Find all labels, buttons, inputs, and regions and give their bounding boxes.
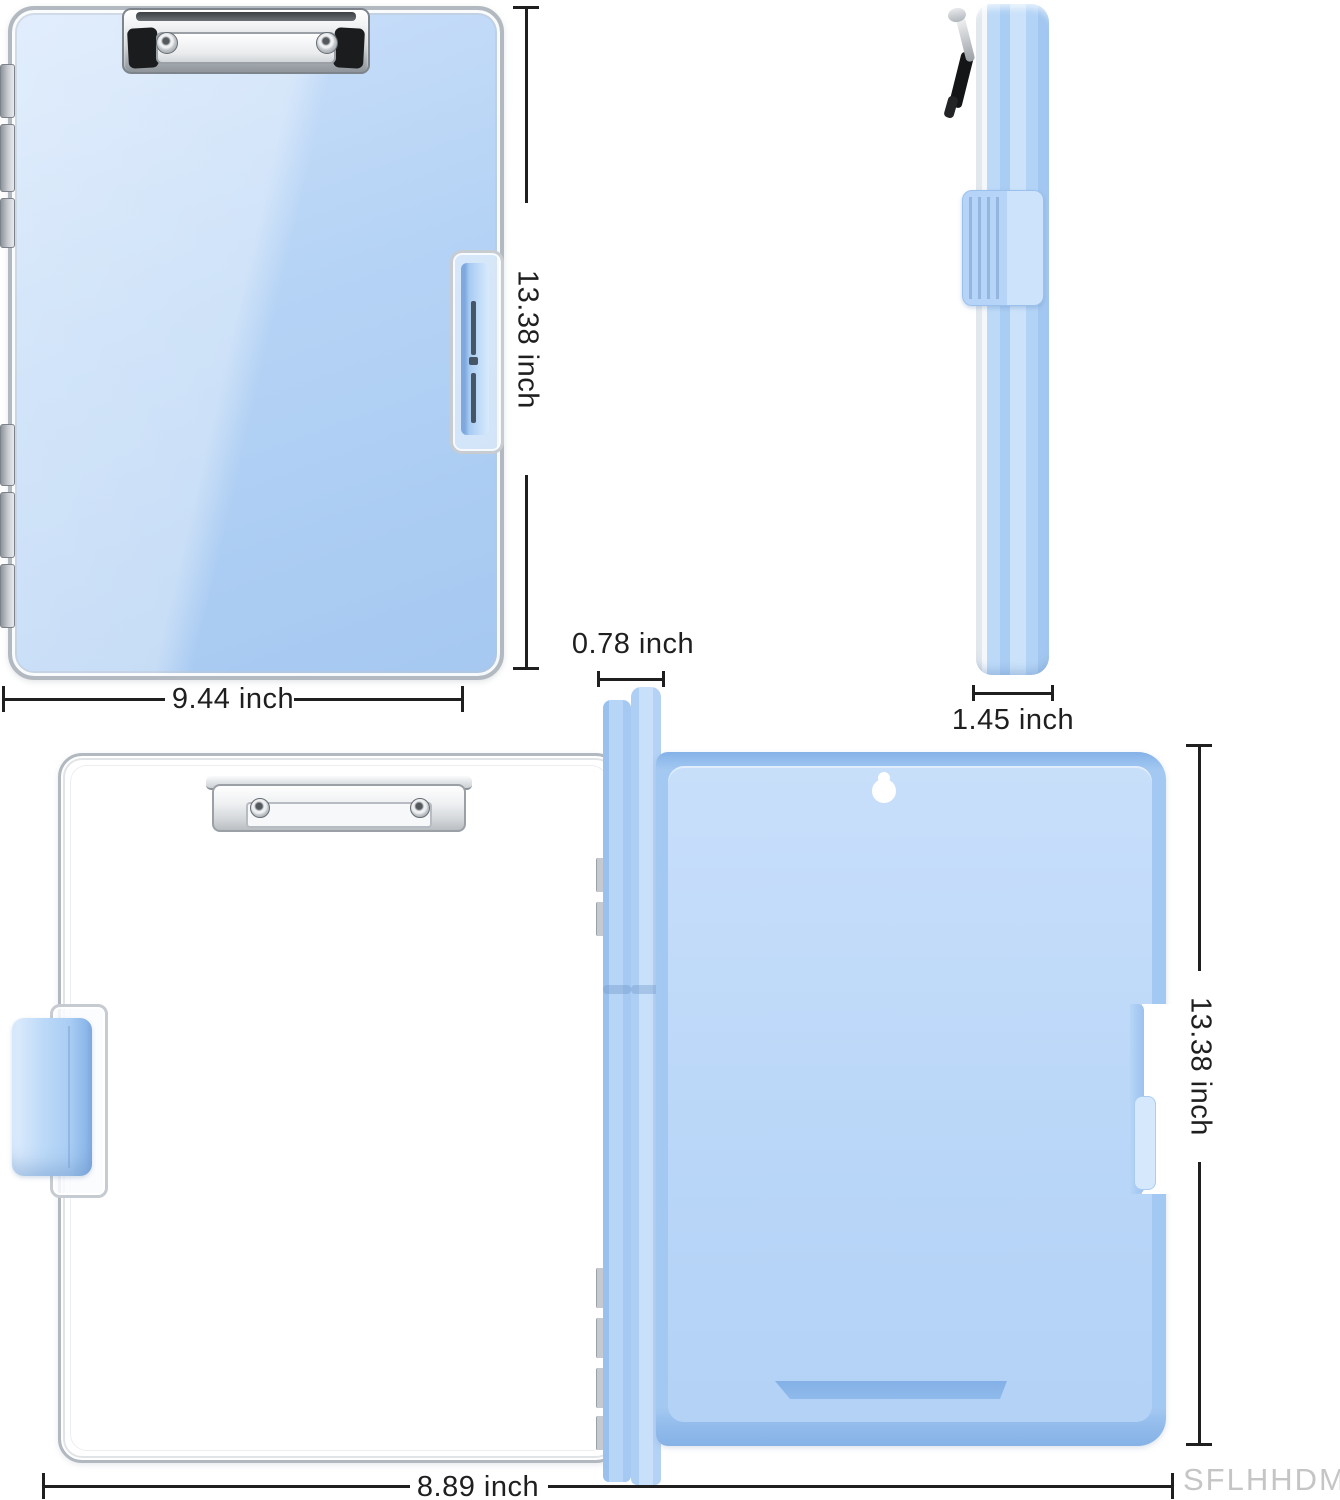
dimension-front-height-label: 13.38 inch — [509, 206, 545, 472]
dimension-back-width: 8.89 inch — [42, 1470, 1174, 1500]
front-view-board — [8, 6, 504, 680]
back-view-panel — [656, 752, 1166, 1446]
hinge-icon — [0, 564, 15, 628]
clip-rivet-right — [410, 798, 430, 818]
hinge-icon — [0, 198, 15, 248]
dimension-side — [972, 684, 1054, 702]
pen-slot — [775, 1381, 1007, 1399]
latch-frame — [450, 250, 504, 454]
hinge-icon — [0, 492, 15, 558]
dimension-spine — [597, 670, 665, 688]
dimension-tick — [1171, 1473, 1174, 1499]
side-view-body — [976, 4, 1049, 675]
hinge-icon — [0, 424, 15, 486]
clip-grip-left — [127, 27, 159, 69]
clip-rivet-left — [250, 798, 270, 818]
dimension-line — [525, 9, 528, 203]
latch-slot — [471, 373, 476, 423]
watermark-text: SFLHHDM — [1183, 1462, 1340, 1498]
clip-rivet-left — [156, 32, 178, 54]
back-panel-inner — [668, 766, 1152, 1422]
dimension-back-width-label: 8.89 inch — [388, 1470, 568, 1500]
dimension-tick — [1051, 685, 1054, 701]
dimension-line — [525, 475, 528, 667]
clip-icon — [206, 776, 472, 836]
dimension-line — [548, 1485, 1171, 1488]
dimension-line — [45, 1485, 410, 1488]
keyhole-hang-hole-icon — [872, 772, 896, 806]
hinge-icon — [0, 124, 15, 192]
clipboard-dimension-diagram: 13.38 inch 9.44 inch 0.78 inch 1.45 inch… — [0, 0, 1340, 1500]
dimension-back-height: 13.38 inch — [1182, 744, 1218, 1446]
clip-icon — [122, 8, 370, 74]
dimension-front-height: 13.38 inch — [509, 6, 545, 670]
open-view-board — [58, 753, 620, 1463]
side-clip-icon — [956, 16, 976, 63]
dimension-tick — [513, 667, 539, 670]
latch-catch-tab — [1134, 1096, 1156, 1190]
dimension-line — [1198, 747, 1201, 971]
clip-lever — [246, 802, 432, 828]
dimension-side-label: 1.45 inch — [950, 702, 1076, 738]
spine-bar — [603, 700, 631, 1482]
clip-rivet-right — [316, 32, 338, 54]
dimension-spine-label: 0.78 inch — [558, 626, 708, 662]
side-latch-icon — [962, 190, 1044, 306]
spine-seam — [603, 985, 631, 994]
dimension-back-height-label: 13.38 inch — [1182, 974, 1218, 1159]
clip-grip-right — [333, 27, 365, 69]
latch-slot — [469, 357, 478, 365]
dimension-front-width-label: 9.44 inch — [2, 682, 464, 716]
dimension-tick — [662, 671, 665, 687]
dimension-line — [600, 678, 662, 681]
latch-slot — [471, 301, 476, 355]
dimension-line — [1198, 1162, 1201, 1443]
latch-tab-icon — [12, 1018, 92, 1176]
hinge-icon — [0, 64, 15, 118]
dimension-line — [975, 692, 1051, 695]
dimension-tick — [1186, 1443, 1212, 1446]
clip-top-bar — [136, 12, 356, 21]
dimension-front-width: 9.44 inch — [2, 682, 464, 716]
clip-lever — [156, 32, 336, 64]
